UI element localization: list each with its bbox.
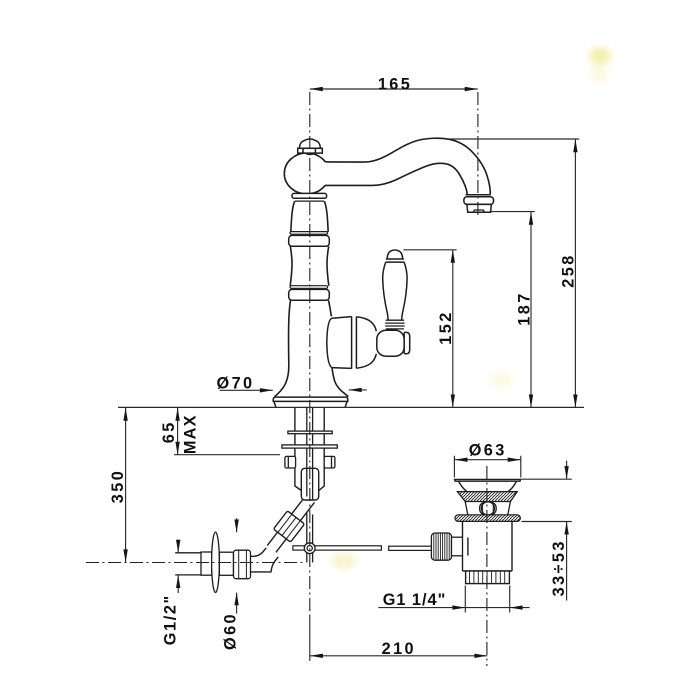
svg-text:210: 210 (382, 640, 416, 658)
svg-text:350: 350 (109, 469, 127, 503)
svg-text:165: 165 (378, 76, 412, 94)
svg-text:Ø63: Ø63 (469, 441, 507, 459)
svg-text:MAX: MAX (181, 414, 199, 454)
svg-text:187: 187 (516, 291, 534, 325)
svg-text:152: 152 (437, 310, 455, 344)
svg-text:33÷53: 33÷53 (550, 539, 568, 596)
svg-text:Ø70: Ø70 (217, 374, 255, 392)
svg-text:65: 65 (160, 420, 178, 443)
svg-text:G1/2": G1/2" (161, 594, 179, 645)
svg-text:258: 258 (560, 253, 578, 287)
svg-text:Ø60: Ø60 (221, 612, 239, 650)
svg-text:G1 1/4": G1 1/4" (383, 591, 447, 609)
